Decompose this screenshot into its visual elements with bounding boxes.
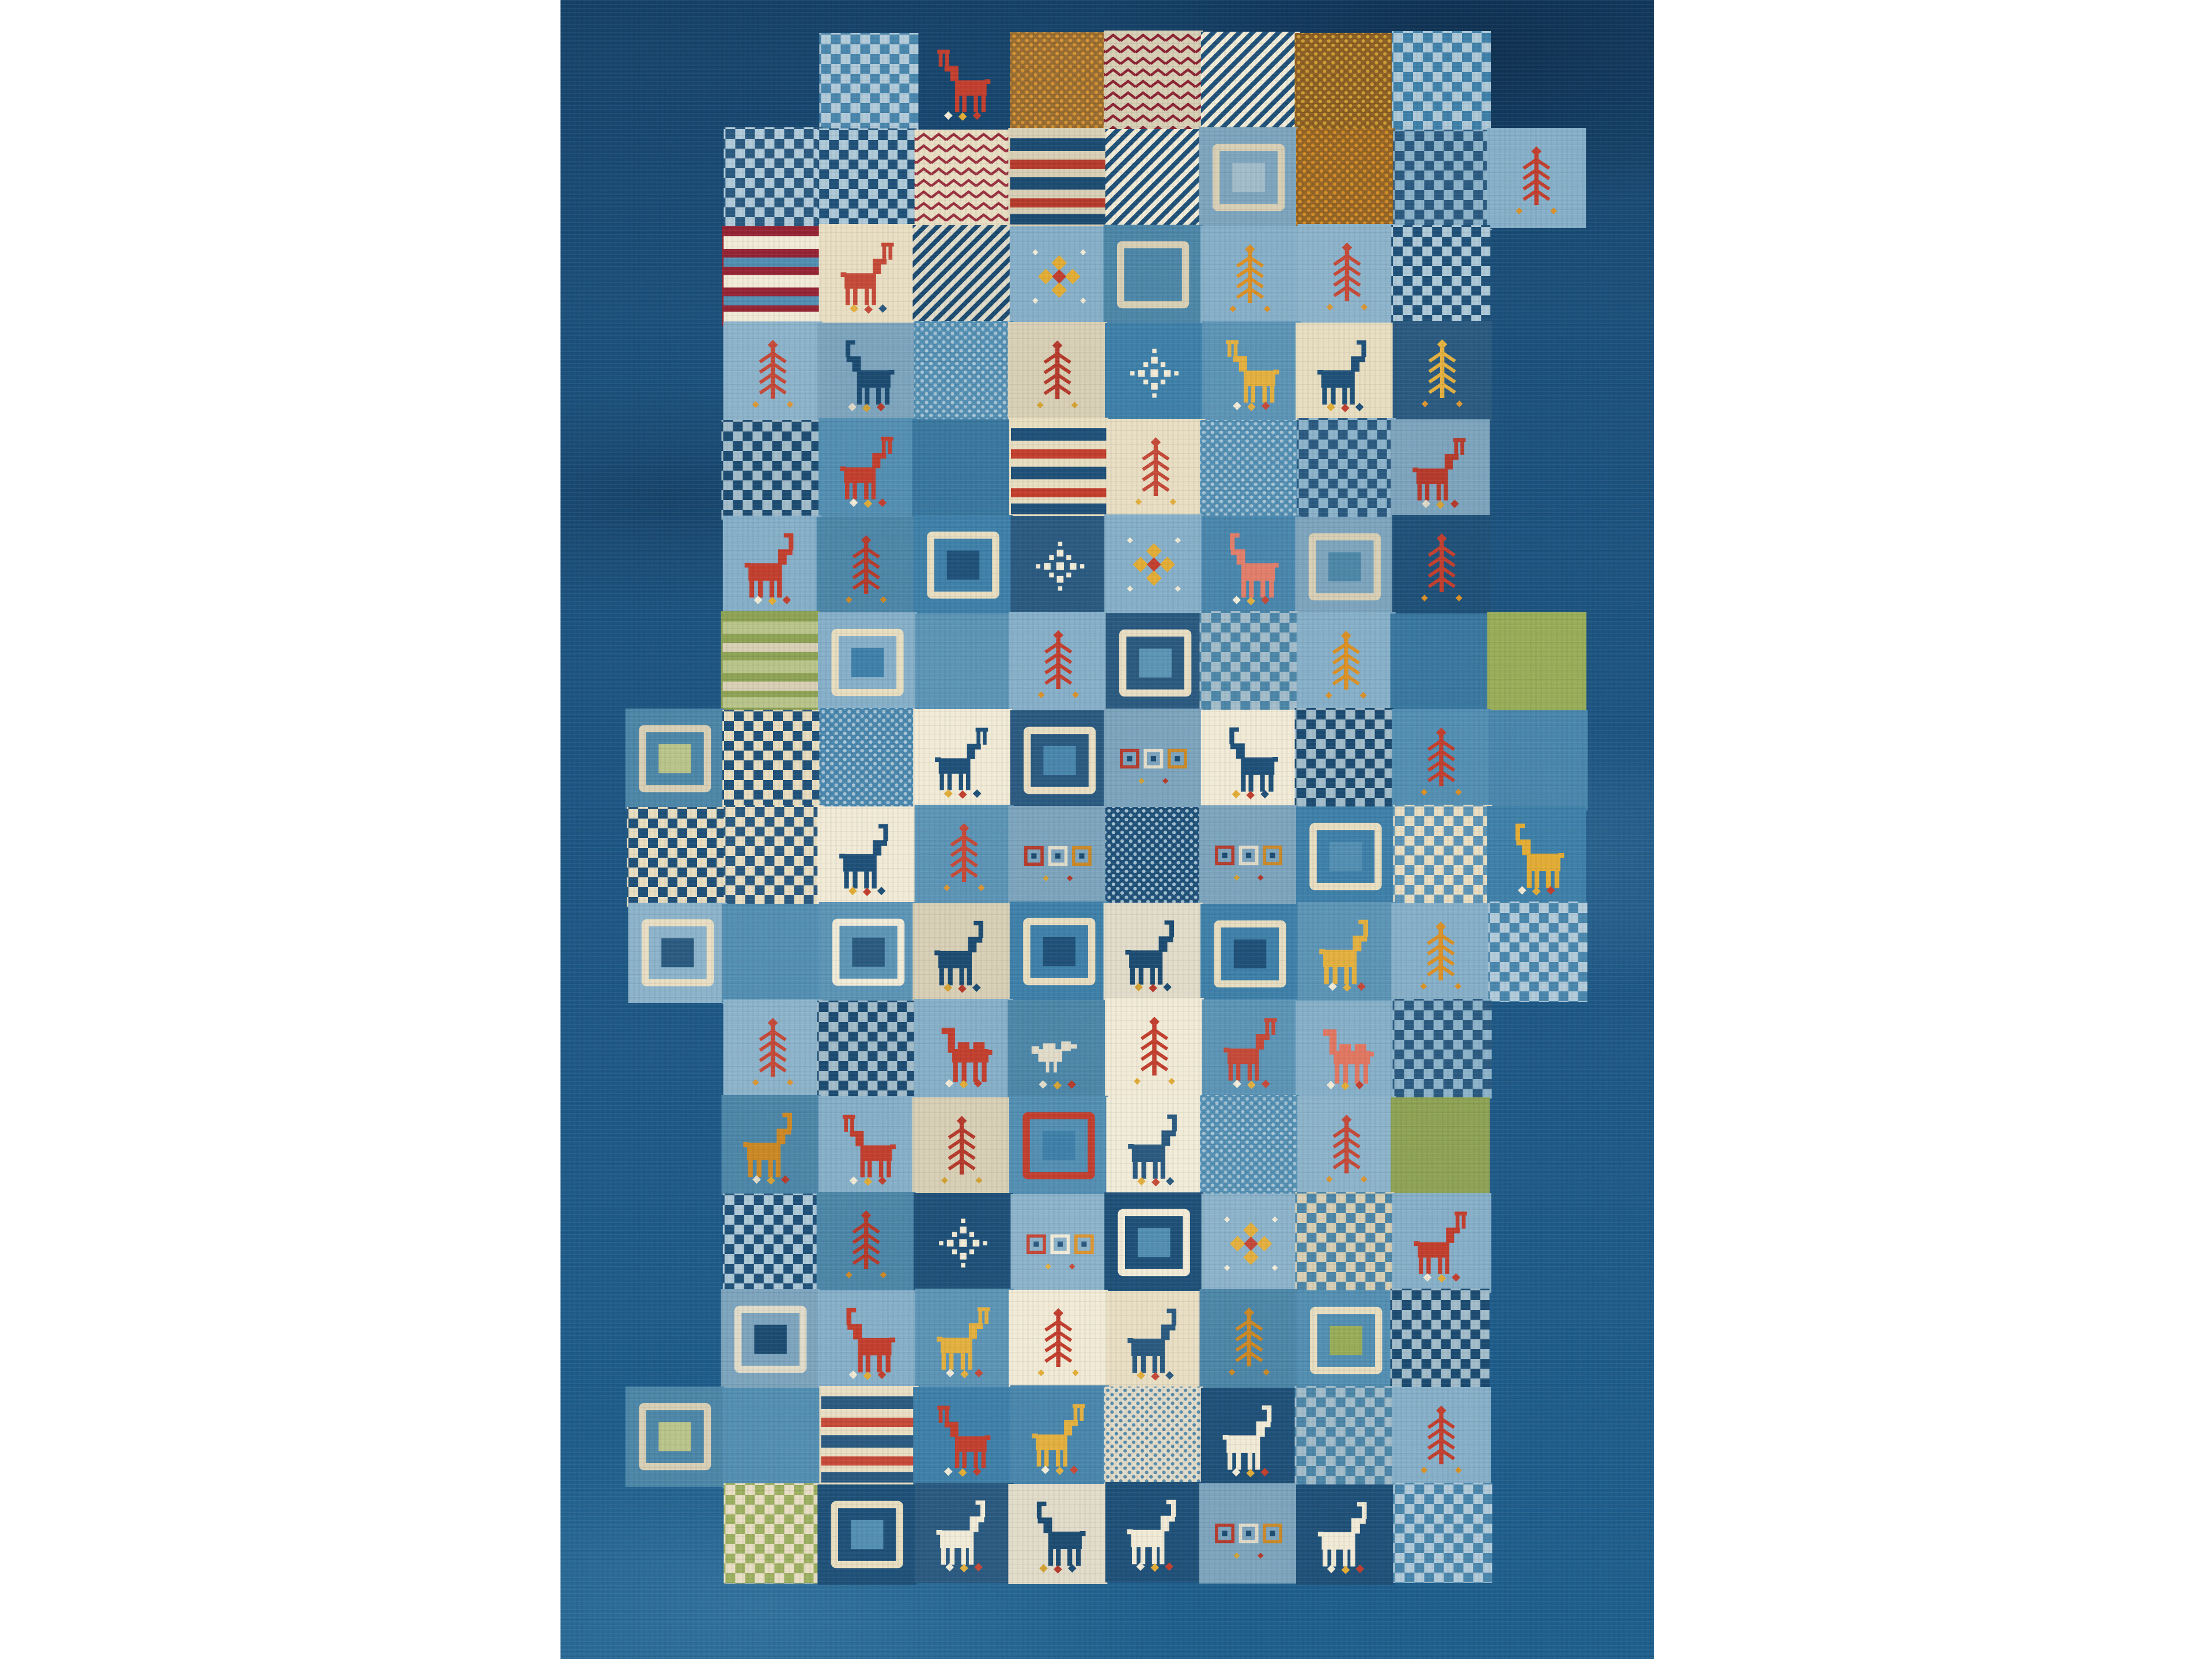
rug [560,0,1654,1659]
rug-patchwork [560,0,1654,1659]
photo-canvas [0,0,2212,1659]
